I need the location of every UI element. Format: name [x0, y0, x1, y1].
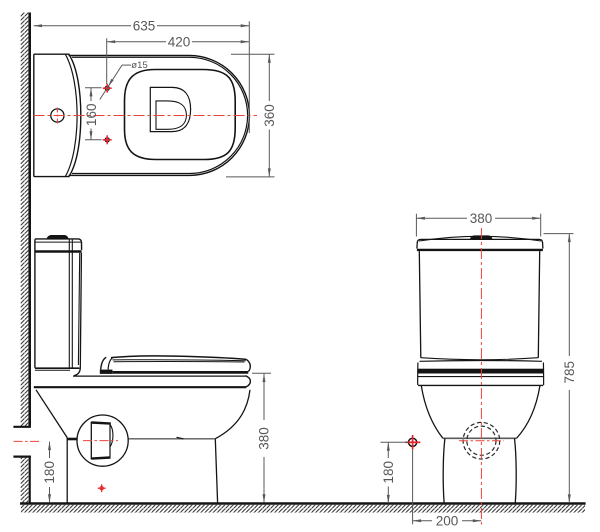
svg-text:ø15: ø15 — [131, 60, 147, 71]
svg-text:180: 180 — [381, 461, 396, 484]
svg-text:160: 160 — [84, 104, 99, 127]
svg-text:635: 635 — [133, 19, 156, 34]
svg-text:180: 180 — [42, 461, 57, 484]
svg-text:200: 200 — [436, 514, 459, 529]
svg-text:380: 380 — [470, 211, 493, 226]
svg-text:420: 420 — [168, 35, 191, 50]
svg-text:360: 360 — [262, 104, 277, 127]
svg-text:785: 785 — [562, 361, 577, 384]
svg-text:380: 380 — [257, 427, 272, 450]
